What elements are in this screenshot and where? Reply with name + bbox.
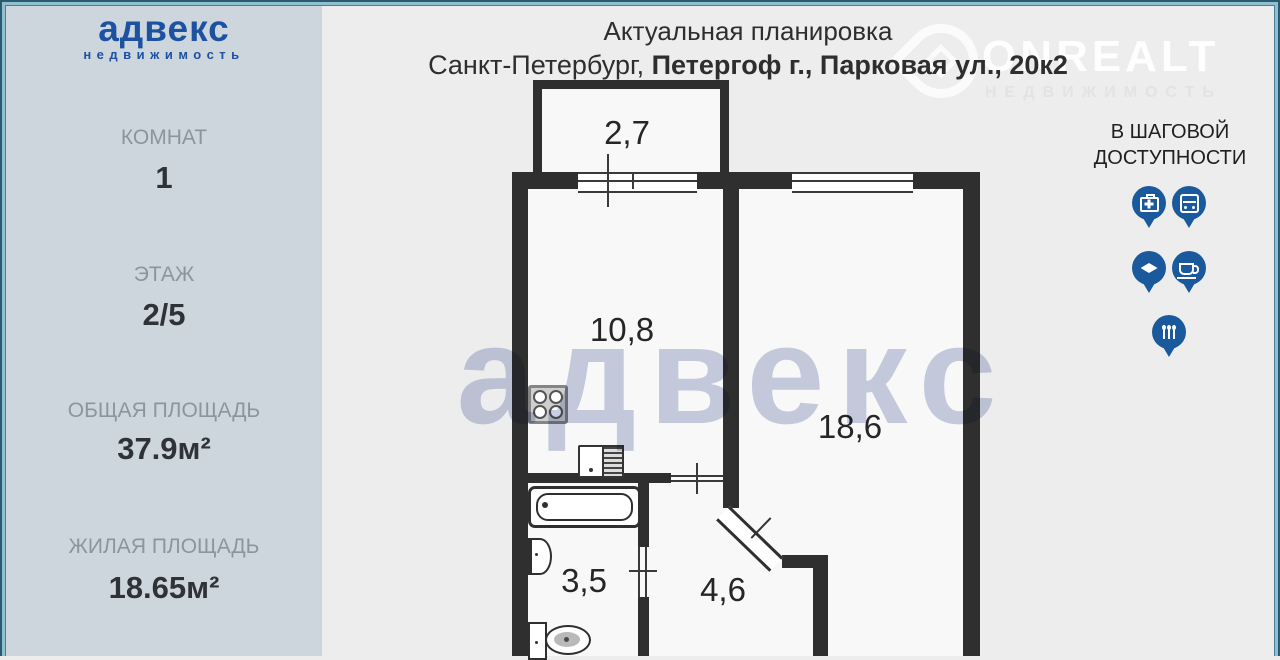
- wall: [638, 597, 649, 656]
- wall: [533, 80, 542, 173]
- bathtub-icon: [528, 486, 641, 528]
- room-area-bathroom: 3,5: [561, 562, 607, 600]
- restaurant-pin-icon: [1152, 315, 1186, 361]
- total-area-value: 37.9м²: [6, 431, 322, 467]
- advex-logo: адвекс: [6, 8, 322, 50]
- rooms-value: 1: [6, 160, 322, 196]
- room-area-hallway: 4,6: [700, 571, 746, 609]
- living-area-label: ЖИЛАЯ ПЛОЩАДЬ: [6, 535, 322, 559]
- window: [792, 172, 913, 193]
- nearby-heading-line1: В ШАГОВОЙ: [1084, 121, 1256, 144]
- address-line: Санкт-Петербург, Петергоф г., Парковая у…: [322, 50, 1174, 81]
- wall: [813, 568, 828, 656]
- nearby-heading-line2: ДОСТУПНОСТИ: [1084, 147, 1256, 170]
- toilet-bowl-icon: [545, 625, 591, 655]
- cafe-pin-icon: [1172, 251, 1206, 297]
- rooms-label: КОМНАТ: [6, 126, 322, 150]
- advex-logo-subtitle: недвижимость: [6, 47, 322, 62]
- doorway-line: [645, 547, 647, 597]
- bus-pin-icon: [1172, 186, 1206, 232]
- advex-watermark: адвекс: [457, 305, 1010, 445]
- total-area-label: ОБЩАЯ ПЛОЩАДЬ: [6, 399, 322, 423]
- first-aid-pin-icon: [1132, 186, 1166, 232]
- floor-value: 2/5: [6, 297, 322, 333]
- room-area-balcony: 2,7: [604, 114, 650, 152]
- address-city: Санкт-Петербург,: [428, 50, 651, 80]
- onrealt-watermark-subtext: НЕДВИЖИМОСТЬ: [985, 84, 1222, 102]
- wall: [720, 80, 729, 173]
- education-pin-icon: [1132, 251, 1166, 297]
- window: [578, 172, 697, 193]
- wall: [533, 80, 729, 89]
- page-title: Актуальная планировка: [322, 16, 1174, 47]
- window-mullion: [632, 172, 634, 189]
- washbasin-icon: [528, 538, 552, 575]
- doorway-line: [638, 547, 640, 597]
- floor-label: ЭТАЖ: [6, 263, 322, 287]
- measure-tick: [629, 570, 657, 572]
- wall: [782, 555, 828, 568]
- measure-tick: [607, 154, 609, 207]
- measure-tick: [696, 463, 698, 494]
- living-area-value: 18.65м²: [6, 570, 322, 606]
- address-street: Петергоф г., Парковая ул., 20к2: [652, 50, 1068, 80]
